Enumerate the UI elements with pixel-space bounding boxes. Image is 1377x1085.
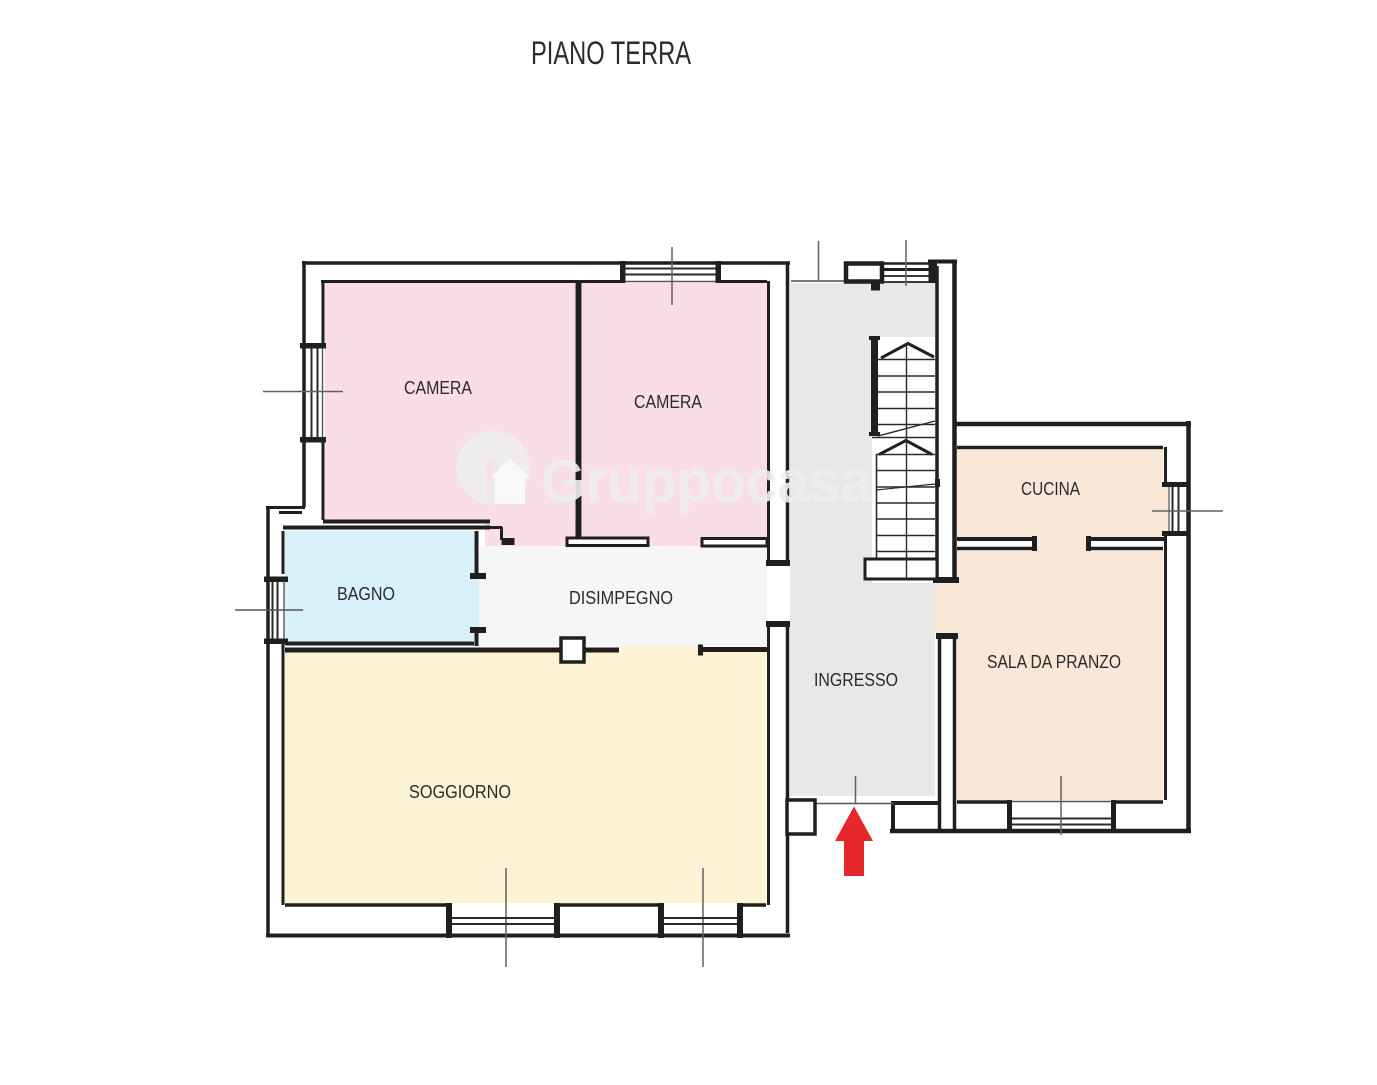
svg-text:Gruppocasa: Gruppocasa — [541, 448, 873, 515]
svg-text:DISIMPEGNO: DISIMPEGNO — [569, 587, 673, 608]
svg-text:PIANO TERRA: PIANO TERRA — [531, 35, 691, 71]
svg-text:CAMERA: CAMERA — [634, 391, 703, 412]
svg-text:CUCINA: CUCINA — [1021, 478, 1081, 499]
svg-text:BAGNO: BAGNO — [337, 583, 395, 604]
svg-text:CAMERA: CAMERA — [404, 377, 473, 398]
svg-text:INGRESSO: INGRESSO — [814, 669, 898, 690]
svg-text:SOGGIORNO: SOGGIORNO — [409, 781, 511, 802]
svg-text:SALA DA PRANZO: SALA DA PRANZO — [987, 651, 1121, 672]
